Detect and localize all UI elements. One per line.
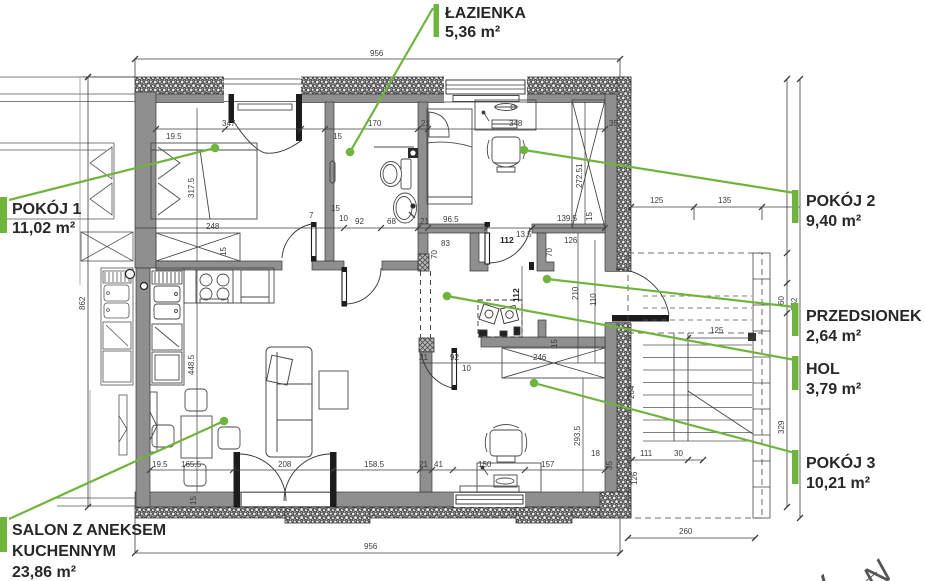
svg-text:92: 92 — [450, 353, 459, 362]
svg-text:21: 21 — [421, 119, 430, 128]
svg-text:448.5: 448.5 — [187, 354, 196, 375]
svg-text:35: 35 — [605, 461, 614, 470]
svg-text:125: 125 — [650, 196, 664, 205]
svg-text:5,36 m²: 5,36 m² — [445, 24, 500, 41]
svg-text:13.5: 13.5 — [516, 230, 532, 239]
svg-text:329: 329 — [777, 420, 786, 434]
svg-text:165.5: 165.5 — [181, 460, 202, 469]
svg-text:956: 956 — [370, 49, 384, 58]
svg-text:70: 70 — [430, 250, 439, 259]
svg-text:157: 157 — [541, 460, 555, 469]
svg-text:41: 41 — [434, 460, 443, 469]
svg-text:POKÓJ 2: POKÓJ 2 — [806, 191, 875, 210]
svg-text:248: 248 — [206, 222, 220, 231]
svg-text:158.5: 158.5 — [364, 460, 385, 469]
svg-text:135: 135 — [718, 196, 732, 205]
svg-text:112: 112 — [511, 288, 521, 302]
svg-text:348: 348 — [509, 119, 523, 128]
svg-text:11,02 m²: 11,02 m² — [12, 220, 75, 237]
svg-text:260: 260 — [679, 527, 693, 536]
svg-text:15: 15 — [331, 204, 340, 213]
svg-text:83: 83 — [441, 239, 450, 248]
svg-text:210: 210 — [571, 286, 580, 300]
svg-text:19.5: 19.5 — [152, 460, 168, 469]
svg-text:15: 15 — [189, 496, 198, 505]
svg-text:60: 60 — [777, 296, 786, 305]
svg-text:21: 21 — [419, 460, 428, 469]
svg-text:10: 10 — [462, 364, 471, 373]
svg-text:3,79 m²: 3,79 m² — [806, 381, 861, 398]
svg-text:317.5: 317.5 — [187, 177, 196, 198]
svg-text:204: 204 — [627, 385, 636, 399]
svg-text:15: 15 — [550, 339, 559, 348]
svg-text:246: 246 — [533, 353, 547, 362]
svg-text:21: 21 — [419, 353, 428, 362]
svg-text:35: 35 — [609, 119, 618, 128]
svg-text:HOL: HOL — [806, 361, 840, 378]
svg-text:KUCHENNYM: KUCHENNYM — [12, 543, 116, 560]
svg-text:139.5: 139.5 — [557, 214, 578, 223]
svg-text:125: 125 — [710, 326, 724, 335]
svg-text:PRZEDSIONEK: PRZEDSIONEK — [806, 308, 922, 325]
svg-text:92: 92 — [355, 217, 364, 226]
svg-text:126: 126 — [564, 236, 578, 245]
svg-text:POKÓJ 1: POKÓJ 1 — [12, 199, 81, 218]
svg-text:170: 170 — [368, 119, 382, 128]
svg-text:30: 30 — [674, 449, 683, 458]
svg-text:2,64 m²: 2,64 m² — [806, 328, 861, 345]
svg-text:POKÓJ 3: POKÓJ 3 — [806, 453, 875, 472]
svg-text:21: 21 — [420, 217, 429, 226]
svg-text:110: 110 — [589, 293, 598, 306]
svg-text:150: 150 — [478, 460, 492, 469]
svg-text:70: 70 — [545, 248, 554, 257]
svg-text:10,21 m²: 10,21 m² — [806, 475, 870, 492]
svg-text:68: 68 — [387, 217, 396, 226]
svg-text:15: 15 — [333, 132, 342, 141]
svg-text:126: 126 — [630, 471, 639, 485]
svg-text:9,40 m²: 9,40 m² — [806, 213, 861, 230]
svg-text:ŁAZIENKA: ŁAZIENKA — [445, 5, 526, 22]
svg-text:347: 347 — [222, 119, 236, 128]
svg-text:96.5: 96.5 — [443, 215, 459, 224]
svg-text:111: 111 — [640, 449, 653, 458]
svg-text:272.51: 272.51 — [575, 163, 584, 188]
svg-text:18: 18 — [591, 449, 600, 458]
svg-text:19.5: 19.5 — [166, 132, 182, 141]
svg-text:23,86 m²: 23,86 m² — [12, 564, 76, 581]
svg-text:956: 956 — [364, 542, 378, 551]
svg-text:15: 15 — [585, 212, 594, 221]
svg-text:862: 862 — [78, 296, 87, 310]
svg-text:15: 15 — [219, 247, 228, 256]
svg-text:208: 208 — [278, 460, 292, 469]
svg-text:10: 10 — [339, 214, 348, 223]
svg-text:SALON Z ANEKSEM: SALON Z ANEKSEM — [12, 522, 166, 539]
svg-text:293.5: 293.5 — [573, 425, 582, 446]
svg-text:112: 112 — [500, 235, 514, 245]
svg-text:7: 7 — [309, 211, 314, 220]
